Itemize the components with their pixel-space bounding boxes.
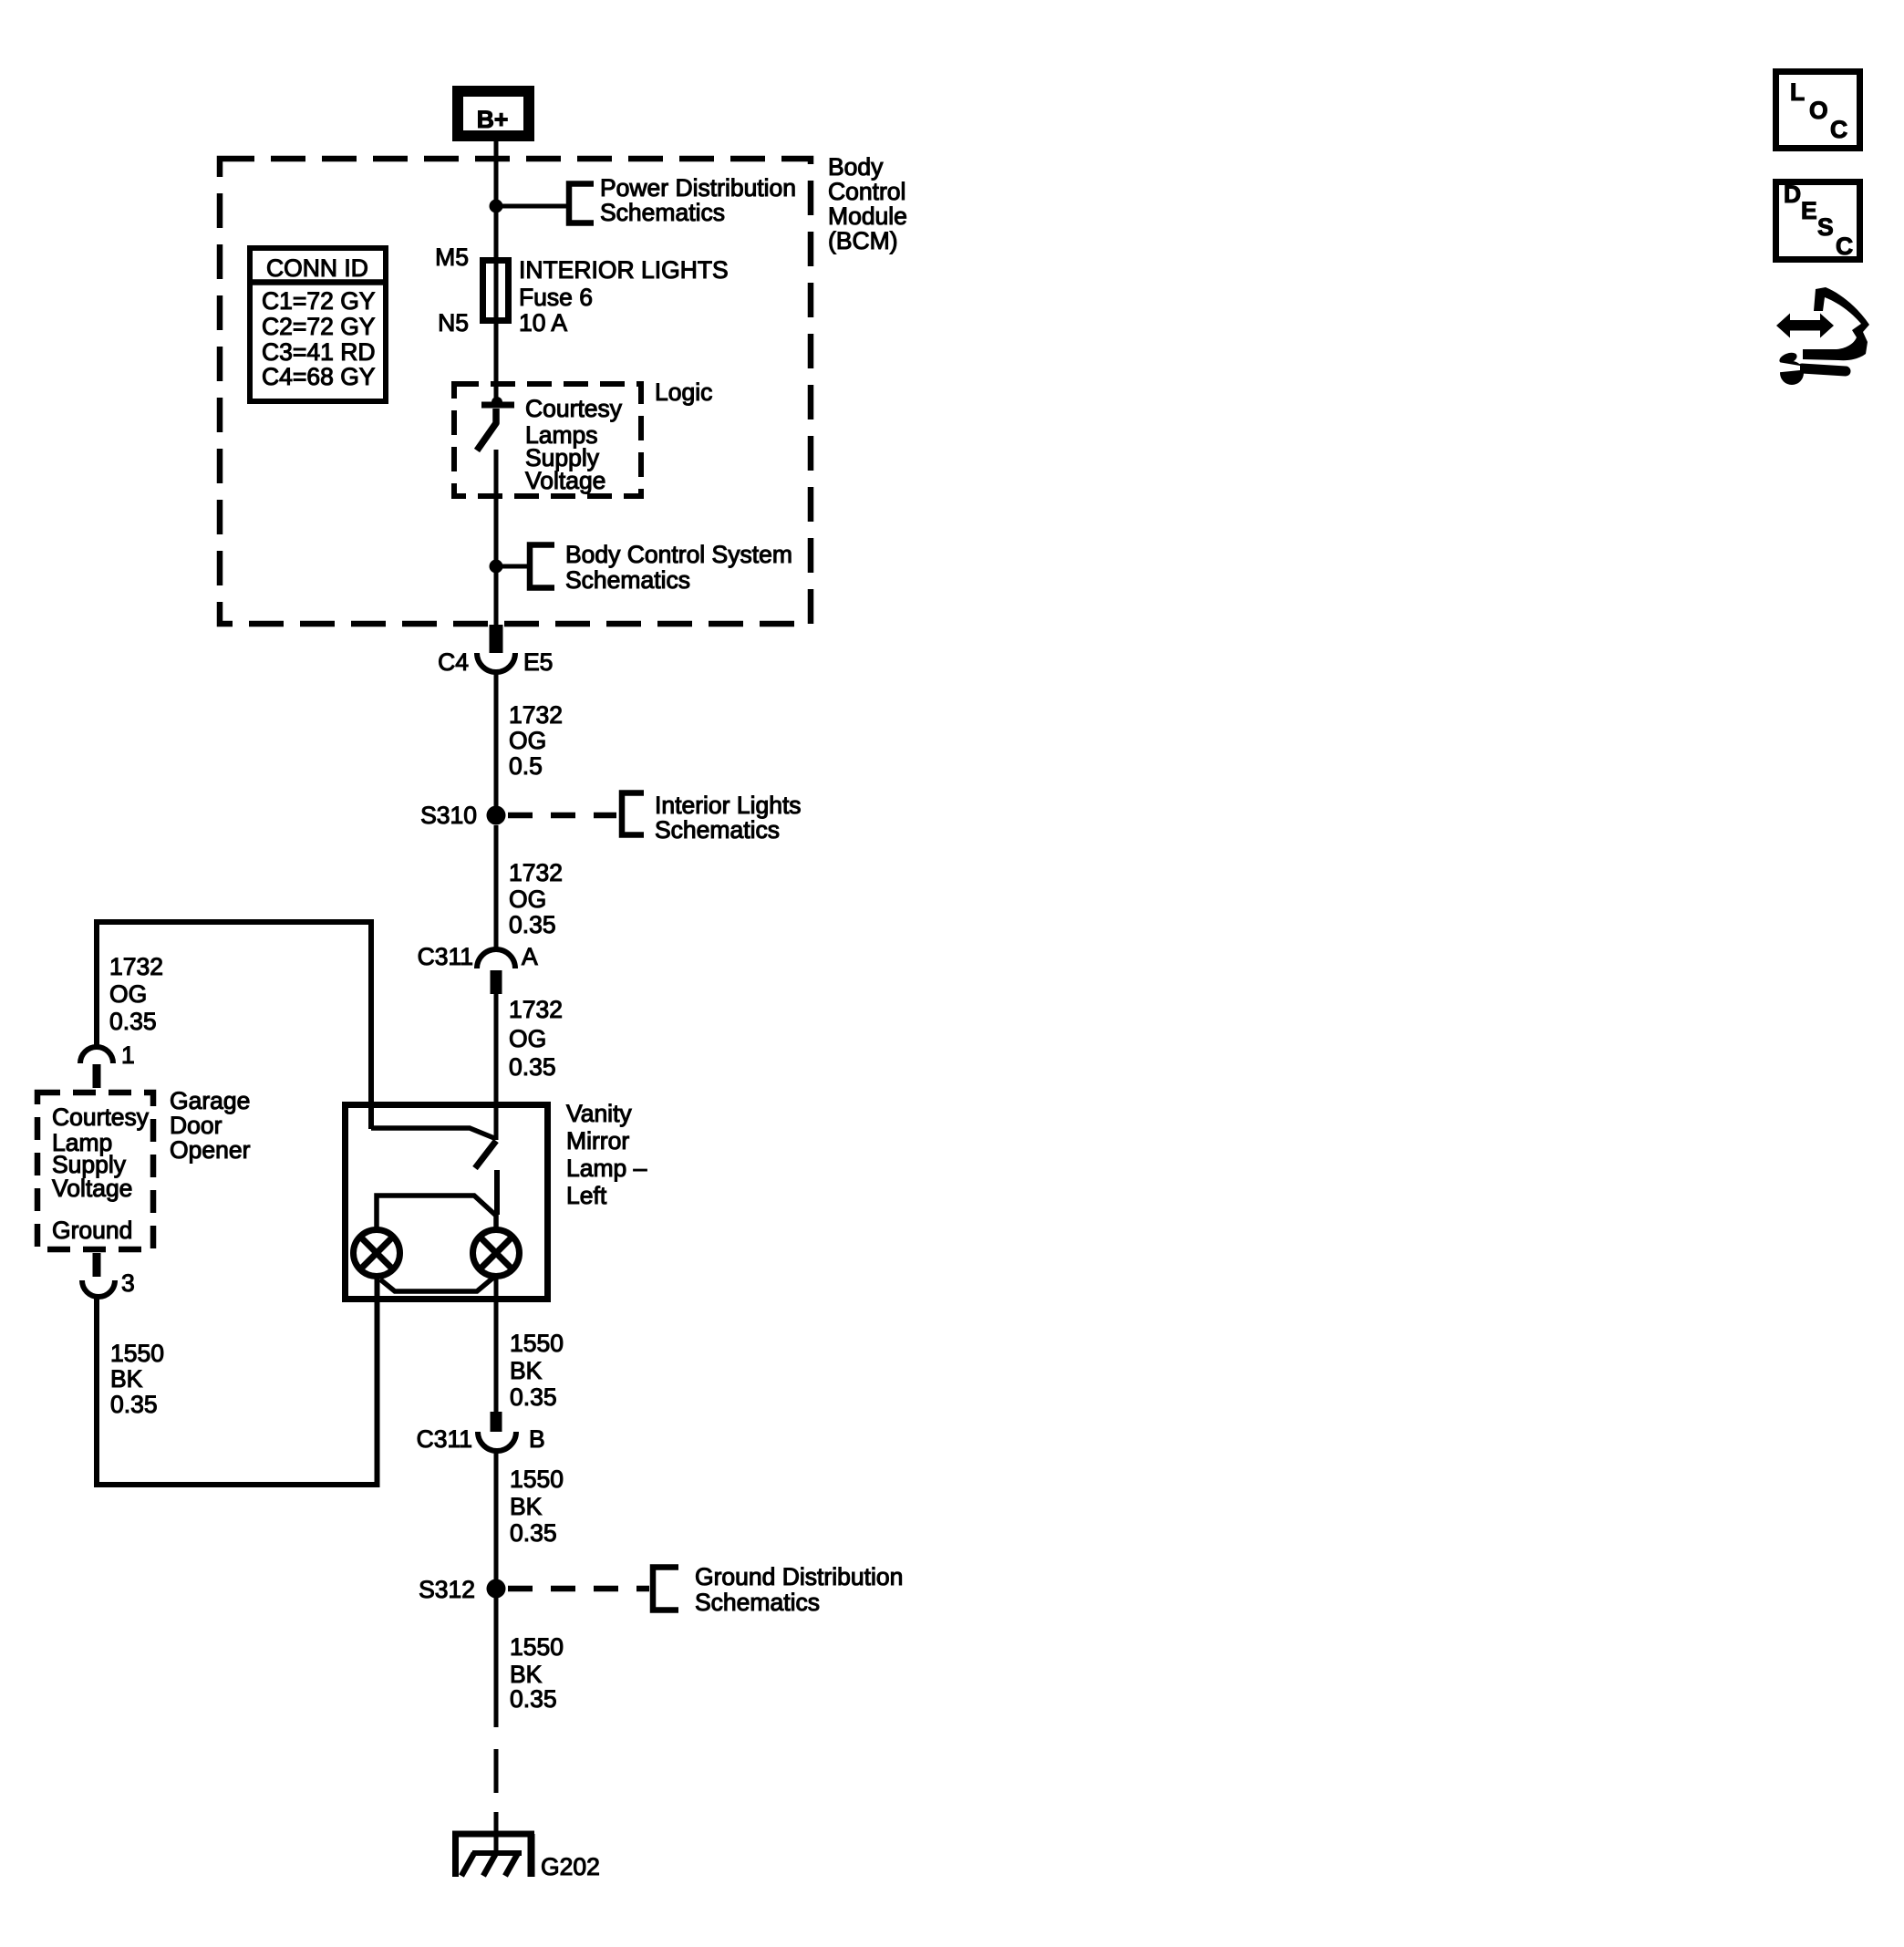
- svg-text:0.35: 0.35: [510, 1685, 557, 1713]
- svg-text:G202: G202: [541, 1853, 600, 1880]
- svg-text:E5: E5: [523, 648, 553, 676]
- svg-text:Door: Door: [170, 1112, 222, 1139]
- svg-text:0.35: 0.35: [510, 1383, 557, 1411]
- svg-text:0.5: 0.5: [509, 752, 543, 780]
- svg-text:Courtesy: Courtesy: [525, 395, 623, 422]
- svg-text:C4: C4: [438, 648, 469, 676]
- svg-text:C4=68 GY: C4=68 GY: [262, 363, 376, 390]
- svg-text:C311: C311: [417, 1425, 472, 1453]
- svg-text:S312: S312: [419, 1576, 475, 1603]
- svg-text:Body: Body: [828, 153, 884, 181]
- svg-text:0.35: 0.35: [510, 1519, 557, 1547]
- svg-text:Fuse 6: Fuse 6: [519, 284, 593, 311]
- svg-text:1732: 1732: [509, 996, 563, 1023]
- svg-text:M5: M5: [435, 243, 469, 271]
- svg-text:Schematics: Schematics: [565, 566, 690, 594]
- svg-text:N5: N5: [438, 309, 469, 337]
- svg-text:L: L: [1790, 78, 1805, 106]
- svg-text:Logic: Logic: [655, 378, 712, 406]
- svg-text:Schematics: Schematics: [655, 816, 780, 844]
- svg-text:Opener: Opener: [170, 1136, 251, 1164]
- svg-text:Interior Lights: Interior Lights: [655, 792, 802, 819]
- svg-text:1: 1: [121, 1041, 135, 1069]
- svg-text:Lamp –: Lamp –: [566, 1155, 647, 1182]
- svg-text:Power Distribution: Power Distribution: [600, 174, 796, 202]
- svg-text:OG: OG: [509, 727, 546, 754]
- svg-text:0.35: 0.35: [109, 1008, 157, 1035]
- svg-text:C: C: [1836, 233, 1853, 260]
- svg-text:Module: Module: [828, 202, 907, 230]
- svg-text:Ground Distribution: Ground Distribution: [695, 1563, 903, 1590]
- svg-text:1732: 1732: [109, 953, 163, 980]
- svg-text:O: O: [1809, 97, 1828, 124]
- svg-text:Schematics: Schematics: [695, 1589, 820, 1616]
- svg-text:Ground: Ground: [52, 1217, 132, 1244]
- svg-text:0.35: 0.35: [110, 1391, 158, 1418]
- svg-text:Voltage: Voltage: [525, 467, 605, 494]
- svg-text:A: A: [522, 943, 538, 970]
- svg-text:1550: 1550: [510, 1465, 564, 1493]
- svg-text:1732: 1732: [509, 859, 563, 886]
- svg-text:10 A: 10 A: [519, 309, 567, 337]
- svg-text:1732: 1732: [509, 701, 563, 729]
- svg-text:C1=72 GY: C1=72 GY: [262, 287, 376, 315]
- svg-text:B: B: [529, 1425, 545, 1453]
- svg-text:Courtesy: Courtesy: [52, 1103, 150, 1131]
- svg-text:B+: B+: [477, 106, 509, 133]
- svg-text:OG: OG: [109, 980, 147, 1008]
- svg-text:S310: S310: [420, 802, 477, 829]
- svg-text:CONN ID: CONN ID: [266, 254, 368, 282]
- svg-text:INTERIOR LIGHTS: INTERIOR LIGHTS: [519, 256, 729, 284]
- svg-text:Garage: Garage: [170, 1087, 250, 1114]
- svg-text:Mirror: Mirror: [566, 1127, 629, 1155]
- svg-text:BK: BK: [510, 1357, 543, 1384]
- svg-text:S: S: [1817, 213, 1834, 241]
- svg-text:BK: BK: [110, 1365, 143, 1393]
- svg-text:Body Control System: Body Control System: [565, 541, 792, 568]
- svg-text:E: E: [1801, 197, 1817, 224]
- svg-text:Control: Control: [828, 178, 905, 205]
- svg-text:D: D: [1784, 181, 1801, 208]
- svg-text:0.35: 0.35: [509, 1053, 556, 1081]
- svg-text:BK: BK: [510, 1661, 543, 1688]
- svg-text:1550: 1550: [510, 1633, 564, 1661]
- svg-text:OG: OG: [509, 1025, 546, 1052]
- svg-text:C2=72 GY: C2=72 GY: [262, 313, 376, 340]
- svg-text:1550: 1550: [110, 1340, 164, 1367]
- svg-text:BK: BK: [510, 1493, 543, 1520]
- svg-text:0.35: 0.35: [509, 911, 556, 938]
- svg-text:1550: 1550: [510, 1330, 564, 1357]
- svg-text:Vanity: Vanity: [566, 1100, 632, 1127]
- svg-text:(BCM): (BCM): [828, 227, 898, 254]
- svg-text:C: C: [1830, 116, 1847, 143]
- svg-text:OG: OG: [509, 885, 546, 913]
- svg-text:C311: C311: [418, 943, 473, 970]
- svg-text:Left: Left: [566, 1182, 607, 1209]
- svg-text:Voltage: Voltage: [52, 1175, 132, 1202]
- svg-text:C3=41 RD: C3=41 RD: [262, 338, 375, 366]
- svg-text:3: 3: [121, 1269, 135, 1297]
- svg-text:Schematics: Schematics: [600, 199, 725, 226]
